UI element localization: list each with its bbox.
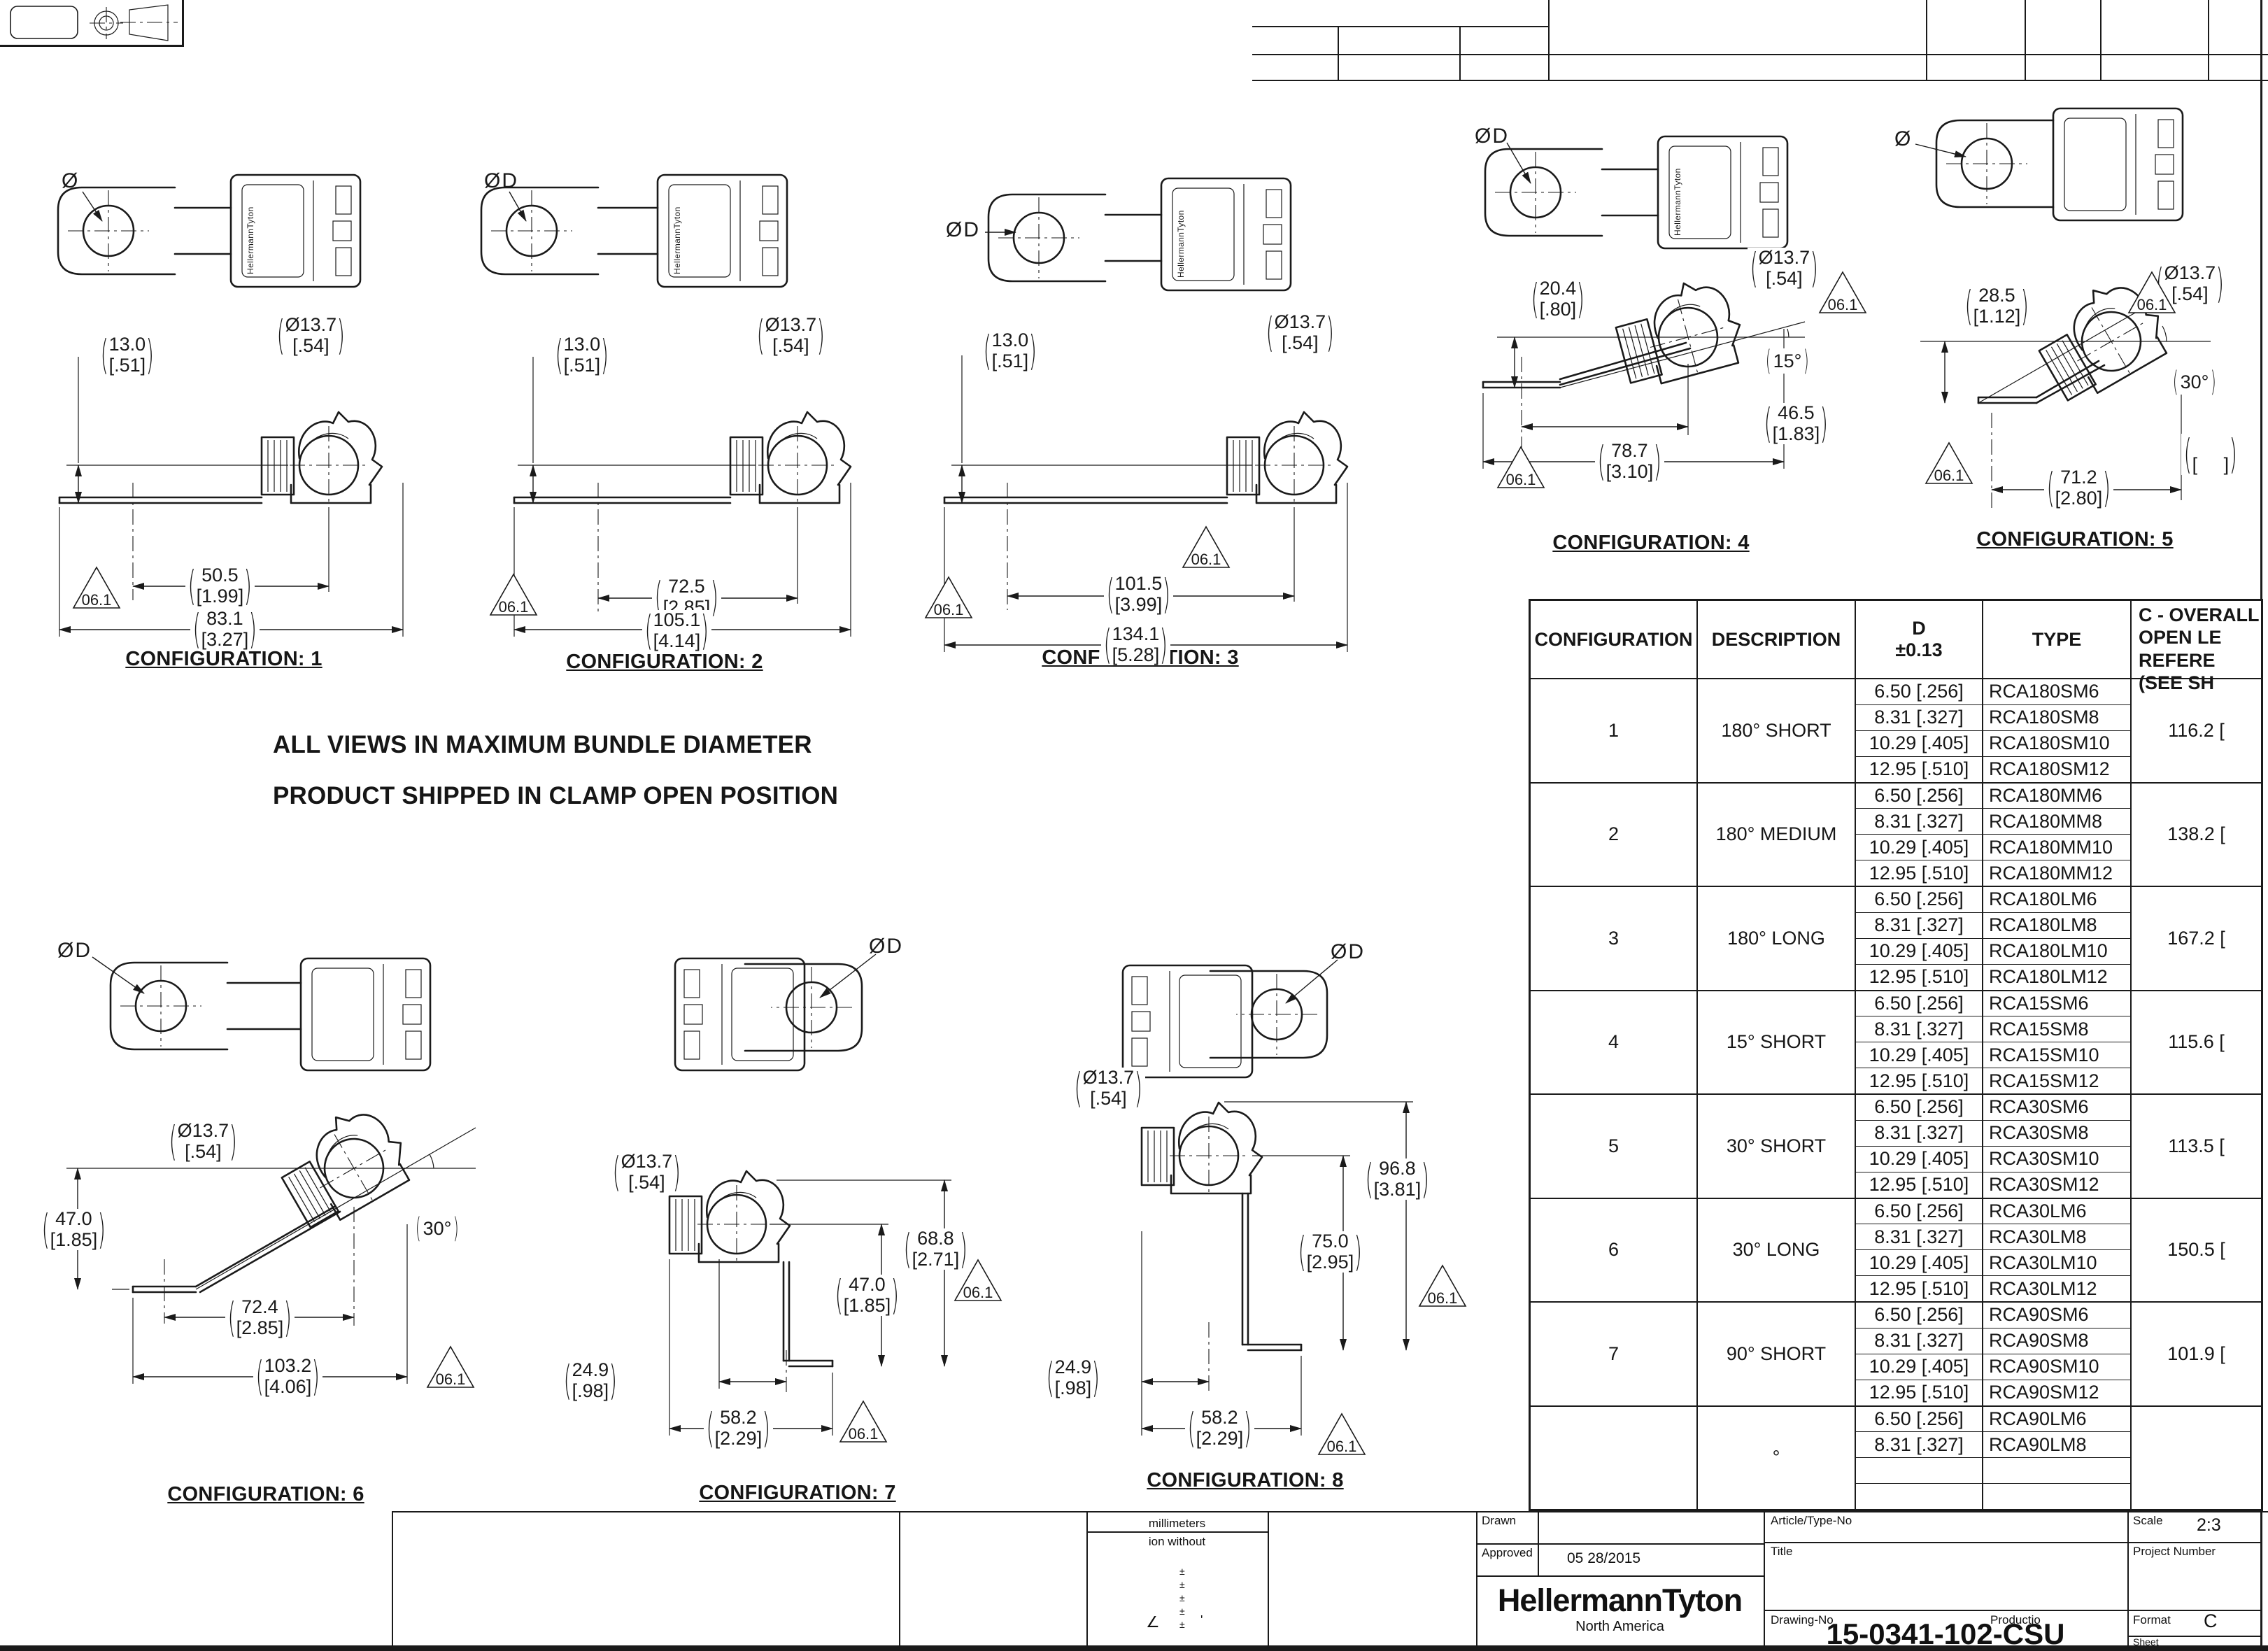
table-row: 8.31 [.327]RCA180LM8	[1856, 913, 2132, 939]
drawn-label: Drawn	[1482, 1514, 1516, 1528]
svg-text:06.1: 06.1	[436, 1370, 466, 1388]
c-cell: 101.9 [	[2132, 1303, 2261, 1405]
config-title: CONFIGURATION: 8	[1014, 1469, 1476, 1492]
tolerance-tick: '	[1200, 1613, 1203, 1628]
header-d: D±0.13	[1856, 601, 1983, 678]
svg-text:06.1: 06.1	[82, 591, 112, 609]
table-row: 12.95 [.510]RCA90SM12	[1856, 1380, 2132, 1405]
config-title: CONFIGURATION: 2	[448, 651, 881, 674]
c-cell	[2132, 1407, 2261, 1510]
svg-text:06.1: 06.1	[499, 598, 529, 616]
configuration-2-drawing: HellermannTyton ØD (13.0[.51]) (Ø13.7[.5…	[448, 147, 881, 672]
datum-flag: 06.1	[425, 1345, 476, 1393]
company-region: North America	[1476, 1619, 1764, 1635]
table-row: 8.31 [.327]RCA30LM8	[1856, 1224, 2132, 1250]
table-row: 12.95 [.510]RCA180SM12	[1856, 757, 2132, 782]
desc-cell: 180° MEDIUM	[1698, 784, 1856, 886]
table-row: 8.31 [.327]RCA180MM8	[1856, 809, 2132, 835]
scale-label: Scale	[2133, 1514, 2163, 1528]
datum-flag: 06.1	[923, 575, 974, 623]
table-group-2: 2 180° MEDIUM 6.50 [.256]RCA180MM6 8.31 …	[1531, 784, 2261, 888]
c-cell: 113.5 [	[2132, 1095, 2261, 1198]
table-row: 10.29 [.405]RCA180MM10	[1856, 835, 2132, 860]
hole-diameter-label: ØD	[1475, 125, 1509, 148]
dim-length-b: (83.1[3.27])	[190, 609, 260, 650]
svg-text:06.1: 06.1	[1428, 1289, 1458, 1307]
hole-diameter-label: ØD	[484, 169, 518, 193]
svg-text:06.1: 06.1	[1934, 467, 1964, 484]
datum-flag: 06.1	[1317, 1412, 1367, 1460]
dim-height: (13.0[.51])	[553, 334, 611, 376]
config-cell: 5	[1531, 1095, 1698, 1198]
dim-length-b: (105.1[4.14])	[642, 610, 711, 651]
dim-length-a: (50.5[1.99])	[185, 565, 255, 607]
datum-flag: 06.1	[1496, 445, 1546, 493]
dim-bundle-dia: (Ø13.7[.54])	[610, 1152, 683, 1193]
config-title: CONFIGURATION: 1	[28, 648, 420, 671]
table-group-8: ° 6.50 [.256]RCA90LM6 8.31 [.327]RCA90LM…	[1531, 1407, 2261, 1510]
c-cell: 138.2 [	[2132, 784, 2261, 886]
format-label: Format	[2133, 1613, 2171, 1627]
table-group-6: 6 30° LONG 6.50 [.256]RCA30LM6 8.31 [.32…	[1531, 1199, 2261, 1303]
table-row: 10.29 [.405]RCA30SM10	[1856, 1147, 2132, 1172]
tolerance-pm: ±	[1179, 1606, 1185, 1617]
dim-height: (13.0[.51])	[98, 334, 157, 376]
svg-text:06.1: 06.1	[1828, 296, 1858, 313]
dim-height-1: (96.8[3.81])	[1363, 1158, 1432, 1200]
projection-symbol-box	[0, 0, 184, 47]
dim-length-b: (71.2[2.80])	[2044, 467, 2113, 509]
dim-height-2: (75.0[2.95])	[1296, 1231, 1365, 1273]
table-row: 8.31 [.327]RCA180SM8	[1856, 705, 2132, 731]
article-label: Article/Type-No	[1771, 1514, 1852, 1528]
approved-label: Approved	[1482, 1546, 1533, 1560]
table-group-5: 5 30° SHORT 6.50 [.256]RCA30SM6 8.31 [.3…	[1531, 1095, 2261, 1199]
dim-length-b: (103.2[4.06])	[253, 1356, 323, 1397]
table-row: 12.95 [.510]RCA180MM12	[1856, 860, 2132, 886]
parts-table: CONFIGURATION DESCRIPTION D±0.13 TYPE C …	[1529, 599, 2263, 1511]
dim-height: (13.0[.51])	[981, 330, 1040, 371]
tolerance-pm: ±	[1179, 1566, 1185, 1577]
hole-diameter-label: Ø	[1894, 127, 1912, 151]
hole-diameter-label: Ø	[62, 169, 79, 193]
configuration-8-drawing: ØD (Ø13.7[.54]) (96.8[3.81]) (75.0[2.95]…	[1014, 930, 1476, 1511]
title-label: Title	[1771, 1545, 1793, 1559]
datum-flag: 06.1	[1417, 1263, 1468, 1312]
table-row: 8.31 [.327]RCA90LM8	[1856, 1432, 2132, 1458]
svg-text:HellermannTyton: HellermannTyton	[672, 206, 682, 274]
datum-flag: 06.1	[488, 572, 539, 621]
config-cell	[1531, 1407, 1698, 1510]
hole-diameter-label: ØD	[57, 939, 92, 963]
table-row: 12.95 [.510]RCA15SM12	[1856, 1068, 2132, 1093]
dim-bundle-dia: (Ø13.7[.54])	[1748, 248, 1821, 289]
note-bundle-diameter: ALL VIEWS IN MAXIMUM BUNDLE DIAMETER	[273, 731, 812, 759]
scale-value: 2:3	[2197, 1515, 2221, 1536]
dim-length-b: (134.1[5.28])	[1101, 624, 1170, 665]
dim-height: (20.4[.80])	[1529, 278, 1587, 320]
table-group-4: 4 15° SHORT 6.50 [.256]RCA15SM6 8.31 [.3…	[1531, 991, 2261, 1096]
table-row: 10.29 [.405]RCA90SM10	[1856, 1354, 2132, 1380]
hole-diameter-label: ØD	[869, 935, 903, 958]
third-angle-projection-icon	[0, 0, 184, 47]
desc-cell: 15° SHORT	[1698, 991, 1856, 1094]
table-group-1: 1 180° SHORT 6.50 [.256]RCA180SM6 8.31 […	[1531, 679, 2261, 784]
c-cell: 115.6 [	[2132, 991, 2261, 1094]
hole-diameter-label: ØD	[1331, 940, 1365, 964]
datum-flag: 06.1	[838, 1399, 888, 1447]
header-type: TYPE	[1983, 601, 2132, 678]
dim-length-a: (58.2[2.29])	[704, 1408, 773, 1449]
tolerance-pm: ±	[1179, 1592, 1185, 1603]
angle-tolerance-icon: ∠	[1146, 1613, 1160, 1631]
svg-text:HellermannTyton: HellermannTyton	[246, 206, 255, 274]
table-row: 12.95 [.510]RCA30LM12	[1856, 1276, 2132, 1301]
dim-length-a: (46.5[1.83])	[1762, 403, 1831, 444]
configuration-4-drawing: HellermannTyton ØD (20.4[.80]) (Ø13.7[.5…	[1455, 119, 1847, 553]
table-row: 8.31 [.327]RCA30SM8	[1856, 1121, 2132, 1147]
dim-length-a: (101.5[3.99])	[1104, 574, 1173, 615]
dim-bundle-dia: (Ø13.7[.54])	[274, 315, 348, 356]
project-number-label: Project Number	[2133, 1545, 2216, 1559]
dim-length-b: (78.7[3.10])	[1595, 441, 1664, 482]
configuration-1-drawing: HellermannTyton Ø (13.0[.51]) (Ø13.7[.54…	[28, 147, 420, 668]
drawing-number: 15-0341-102-CSU	[1764, 1617, 2127, 1651]
dim-length-a: (58.2[2.29])	[1185, 1408, 1254, 1449]
config-cell: 7	[1531, 1303, 1698, 1405]
datum-flag: 06.1	[1181, 525, 1231, 573]
datum-flag: 06.1	[71, 565, 122, 614]
table-group-7: 7 90° SHORT 6.50 [.256]RCA90SM6 8.31 [.3…	[1531, 1303, 2261, 1407]
company-logo: HellermannTyton	[1476, 1582, 1764, 1619]
table-row: 6.50 [.256]RCA15SM6	[1856, 991, 2132, 1017]
configuration-6-drawing: ØD (Ø13.7[.54]) (47.0[1.85]) (30°) (72.4…	[28, 930, 504, 1511]
desc-cell: 180° SHORT	[1698, 679, 1856, 782]
hole-diameter-label: ØD	[946, 218, 980, 242]
config-cell: 1	[1531, 679, 1698, 782]
c-cell: 150.5 [	[2132, 1199, 2261, 1302]
table-row: 10.29 [.405]RCA180LM10	[1856, 939, 2132, 965]
table-row: 12.95 [.510]RCA180LM12	[1856, 965, 2132, 990]
svg-text:HellermannTyton: HellermannTyton	[1673, 168, 1682, 236]
config-cell: 2	[1531, 784, 1698, 886]
dim-height: (47.0[1.85])	[39, 1209, 108, 1250]
header-description: DESCRIPTION	[1698, 601, 1856, 678]
table-row	[1856, 1484, 2132, 1509]
table-row: 12.95 [.510]RCA30SM12	[1856, 1172, 2132, 1198]
config-title: CONFIGURATION: 6	[28, 1483, 504, 1506]
svg-text:HellermannTyton: HellermannTyton	[1176, 210, 1186, 278]
dim-angle: (30°)	[2171, 369, 2218, 395]
dim-angle: (15°)	[1764, 348, 1810, 374]
config-title: CONFIGURATION: 5	[1882, 528, 2268, 551]
config-title: CONFIGURATION: 4	[1455, 532, 1847, 555]
dim-offset: (24.9[.98])	[561, 1360, 620, 1401]
svg-text:06.1: 06.1	[934, 601, 964, 618]
header-configuration: CONFIGURATION	[1531, 601, 1698, 678]
dim-offset: (24.9[.98])	[1044, 1357, 1103, 1398]
dim-bundle-dia: (Ø13.7[.54])	[1263, 312, 1337, 353]
table-row: 8.31 [.327]RCA15SM8	[1856, 1016, 2132, 1042]
c-cell: 167.2 [	[2132, 887, 2261, 990]
note-clamp-open: PRODUCT SHIPPED IN CLAMP OPEN POSITION	[273, 782, 838, 810]
table-group-3: 3 180° LONG 6.50 [.256]RCA180LM6 8.31 [.…	[1531, 887, 2261, 991]
format-value: C	[2204, 1610, 2218, 1632]
configuration-7-drawing: ØD (Ø13.7[.54]) (68.8[2.71]) (47.0[1.85]…	[602, 930, 993, 1511]
units-label: millimeters	[1086, 1517, 1268, 1531]
config-title: CONFIGURATION: 7	[602, 1482, 993, 1505]
desc-cell: °	[1698, 1407, 1856, 1510]
svg-text:06.1: 06.1	[2137, 296, 2167, 313]
table-row: 6.50 [.256]RCA180MM6	[1856, 784, 2132, 809]
desc-cell: 30° LONG	[1698, 1199, 1856, 1302]
c-cell: 116.2 [	[2132, 679, 2261, 782]
datum-flag: 06.1	[953, 1258, 1003, 1306]
desc-cell: 30° SHORT	[1698, 1095, 1856, 1198]
svg-text:06.1: 06.1	[849, 1425, 879, 1443]
dim-bundle-dia: (Ø13.7[.54])	[1072, 1068, 1145, 1109]
dim-height-2: (47.0[1.85])	[832, 1275, 902, 1316]
sheet-label: Sheet	[2133, 1636, 2159, 1648]
tolerance-pm: ±	[1179, 1619, 1185, 1630]
table-row: 10.29 [.405]RCA30LM10	[1856, 1250, 2132, 1276]
config-cell: 6	[1531, 1199, 1698, 1302]
table-row: 6.50 [.256]RCA180LM6	[1856, 887, 2132, 913]
units-note: ion without	[1086, 1535, 1268, 1549]
svg-text:06.1: 06.1	[1327, 1438, 1357, 1455]
table-row: 6.50 [.256]RCA30SM6	[1856, 1095, 2132, 1121]
dim-length-a: (72.4[2.85])	[225, 1297, 295, 1338]
configuration-3-drawing: HellermannTyton ØD (13.0[.51]) (Ø13.7[.5…	[902, 147, 1378, 679]
dim-blank: ( [ ])	[2181, 434, 2240, 475]
desc-cell: 180° LONG	[1698, 887, 1856, 990]
configuration-5-drawing: Ø (28.5[1.12]) (Ø13.7[.54]) (30°) ( [ ])…	[1882, 119, 2268, 553]
svg-text:06.1: 06.1	[1506, 471, 1536, 488]
table-row: 10.29 [.405]RCA180SM10	[1856, 731, 2132, 757]
svg-text:06.1: 06.1	[1191, 551, 1221, 568]
datum-flag: 06.1	[2127, 270, 2177, 318]
desc-cell: 90° SHORT	[1698, 1303, 1856, 1405]
table-row: 6.50 [.256]RCA180SM6	[1856, 679, 2132, 705]
table-row	[1856, 1458, 2132, 1484]
table-row: 6.50 [.256]RCA90LM6	[1856, 1407, 2132, 1433]
header-c-overall: C - OVERALL OPEN LE REFERE (SEE SH	[2132, 601, 2261, 678]
config-cell: 4	[1531, 991, 1698, 1094]
table-row: 6.50 [.256]RCA90SM6	[1856, 1303, 2132, 1328]
datum-flag: 06.1	[1817, 270, 1868, 318]
table-row: 6.50 [.256]RCA30LM6	[1856, 1199, 2132, 1225]
dim-height: (28.5[1.12])	[1962, 285, 2032, 327]
dim-angle: (30°)	[414, 1216, 460, 1241]
approved-date: 05 28/2015	[1567, 1550, 1640, 1567]
dim-bundle-dia: (Ø13.7[.54])	[166, 1121, 240, 1162]
config-cell: 3	[1531, 887, 1698, 990]
parts-table-header: CONFIGURATION DESCRIPTION D±0.13 TYPE C …	[1531, 601, 2261, 679]
dim-bundle-dia: (Ø13.7[.54])	[754, 315, 828, 356]
svg-text:06.1: 06.1	[963, 1284, 993, 1301]
datum-flag: 06.1	[1924, 441, 1974, 489]
table-row: 10.29 [.405]RCA15SM10	[1856, 1042, 2132, 1068]
tolerance-pm: ±	[1179, 1579, 1185, 1590]
table-row: 8.31 [.327]RCA90SM8	[1856, 1328, 2132, 1354]
